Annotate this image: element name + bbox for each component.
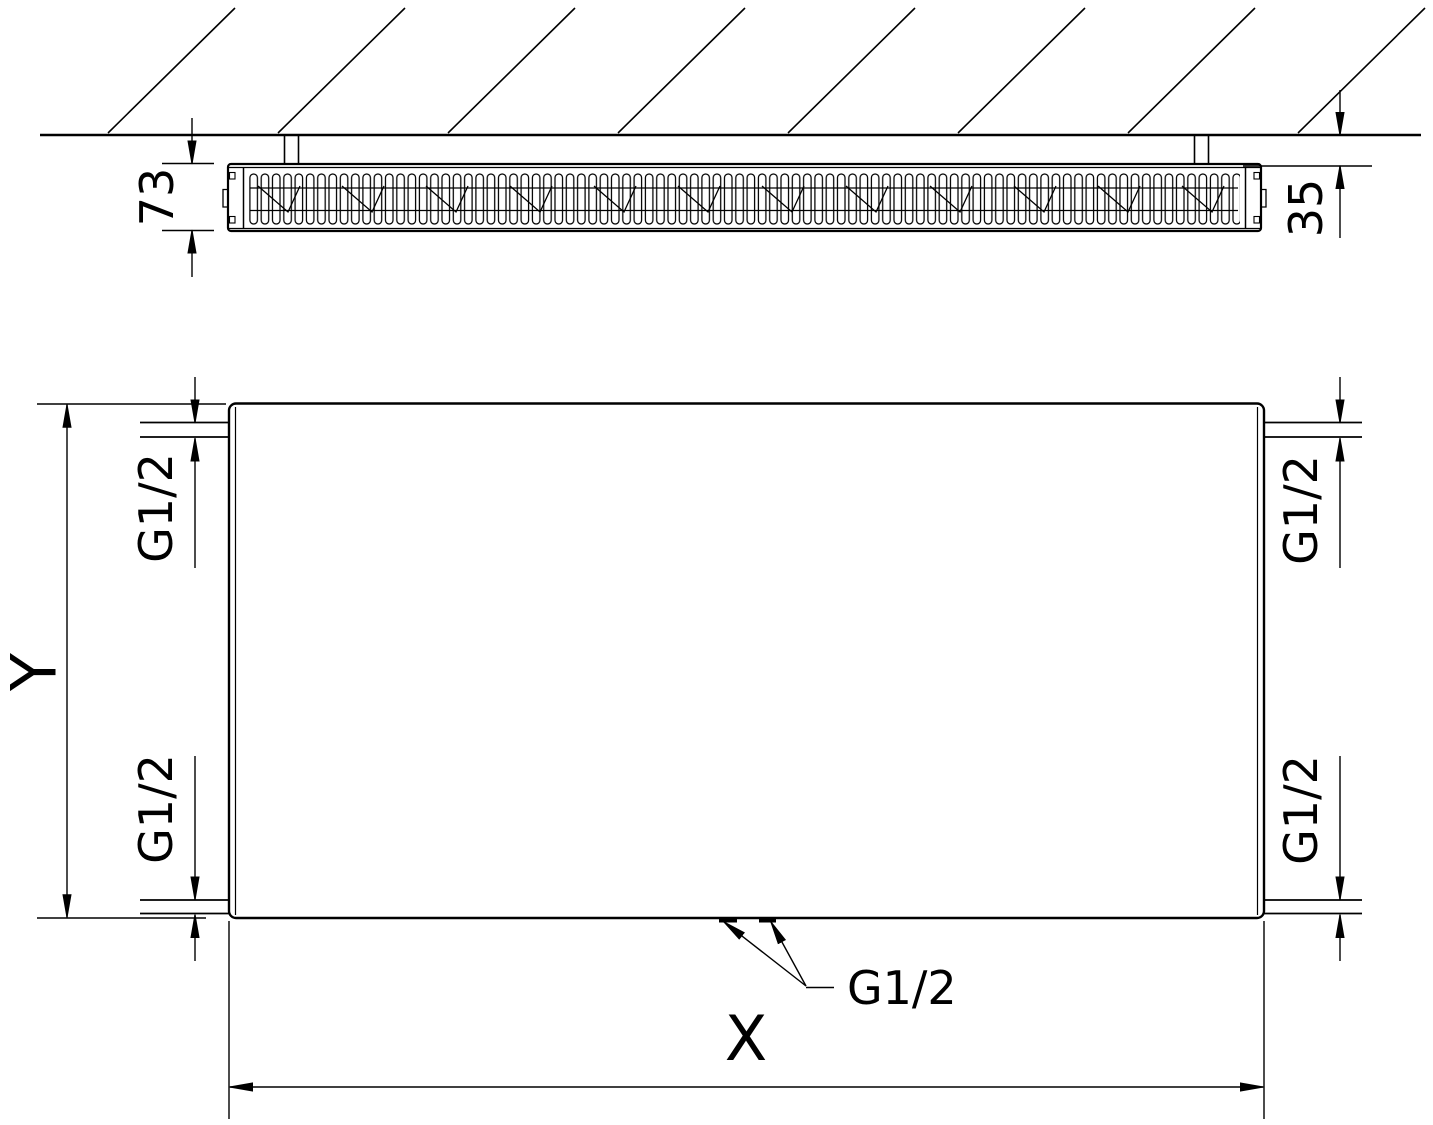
end-cap-left-tab-top <box>230 173 236 180</box>
radiator-front-view <box>140 404 1362 921</box>
technical-drawing-canvas: 73 35 G1/2 G1/2 G1/2 <box>0 0 1433 1125</box>
connection-label-top-right: G1/2 <box>1274 455 1328 565</box>
convector-fins <box>248 173 1240 226</box>
connection-label-bottom-right: G1/2 <box>1274 755 1328 865</box>
dimension-wall-distance-label: 35 <box>1279 179 1333 238</box>
connection-label-bottom-left: G1/2 <box>129 754 183 864</box>
end-cap-right-tab-top <box>1254 173 1260 180</box>
end-cap-left-tab-bottom <box>230 217 236 224</box>
radiator-front-panel <box>229 404 1264 919</box>
dimension-depth-label: 73 <box>130 168 184 227</box>
connection-label-bottom-center: G1/2 <box>847 961 957 1015</box>
end-cap-right-tab-bottom <box>1254 217 1260 224</box>
height-label: Y <box>0 653 71 692</box>
radiator-dimension-drawing: 73 35 G1/2 G1/2 G1/2 <box>0 0 1433 1125</box>
connection-label-top-left: G1/2 <box>129 453 183 563</box>
width-label: X <box>725 1002 767 1075</box>
